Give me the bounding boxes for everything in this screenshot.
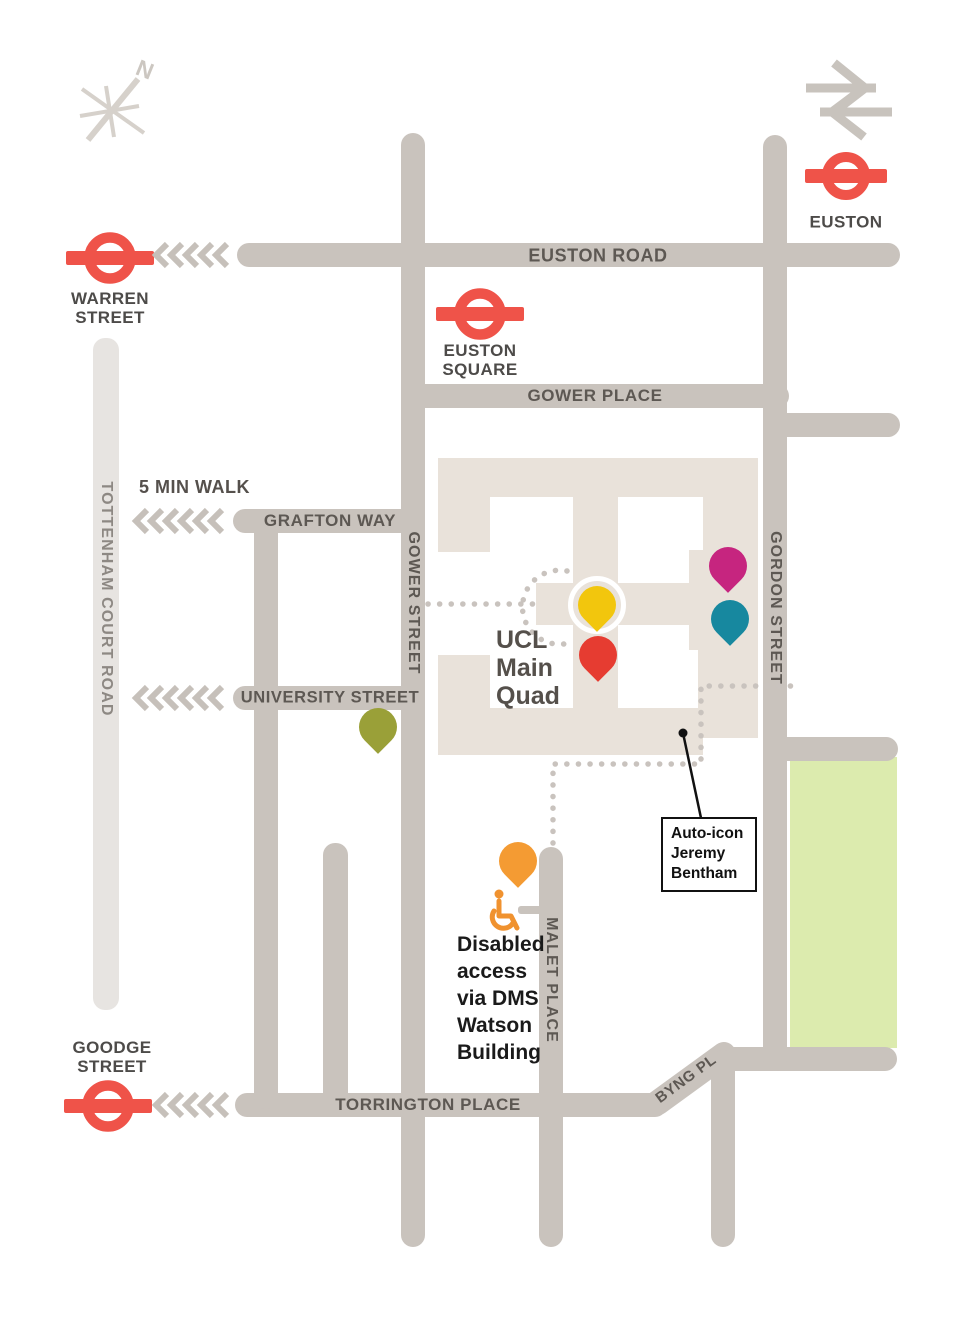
map-decoration-layer xyxy=(0,0,980,1336)
walk-time-label: 5 MIN WALK xyxy=(139,477,250,498)
tube-roundel-euston xyxy=(805,157,887,195)
auto-icon-label-line: Bentham xyxy=(671,864,749,884)
chevrons-euston-road-west xyxy=(156,244,227,266)
ucl-campus-access-map: N EUSTON ROAD GOWER PLACE GRAFTON WAY UN… xyxy=(0,0,980,1336)
auto-icon-label-line: Jeremy xyxy=(671,844,749,864)
tube-roundel-warren-street xyxy=(66,238,154,279)
disabled-access-label-line: access xyxy=(457,958,545,985)
chevrons-grafton-way-west xyxy=(136,510,222,532)
auto-icon-label-line: Auto-icon xyxy=(671,824,749,844)
disabled-access-label-line: Disabled xyxy=(457,931,545,958)
disabled-access-label-line: via DMS xyxy=(457,985,545,1012)
tube-roundel-goodge-street xyxy=(64,1086,152,1127)
tube-roundel-euston-square xyxy=(436,294,524,335)
disabled-access-icon xyxy=(492,890,517,929)
auto-icon-pointer-line xyxy=(679,729,702,819)
national-rail-icon xyxy=(806,63,892,137)
auto-icon-label-box: Auto-icon Jeremy Bentham xyxy=(661,817,757,892)
disabled-access-label-line: Building xyxy=(457,1039,545,1066)
ucl-main-quad-label-line: Main xyxy=(496,654,560,682)
ucl-main-quad-label-line: UCL xyxy=(496,626,560,654)
compass-north-icon xyxy=(80,79,144,140)
disabled-access-label: Disabled access via DMS Watson Building xyxy=(457,931,545,1066)
ucl-main-quad-label: UCL Main Quad xyxy=(496,626,560,710)
ucl-main-quad-label-line: Quad xyxy=(496,682,560,710)
disabled-access-label-line: Watson xyxy=(457,1012,545,1039)
chevrons-university-street-west xyxy=(136,687,222,709)
chevrons-torrington-place-west xyxy=(156,1094,227,1116)
